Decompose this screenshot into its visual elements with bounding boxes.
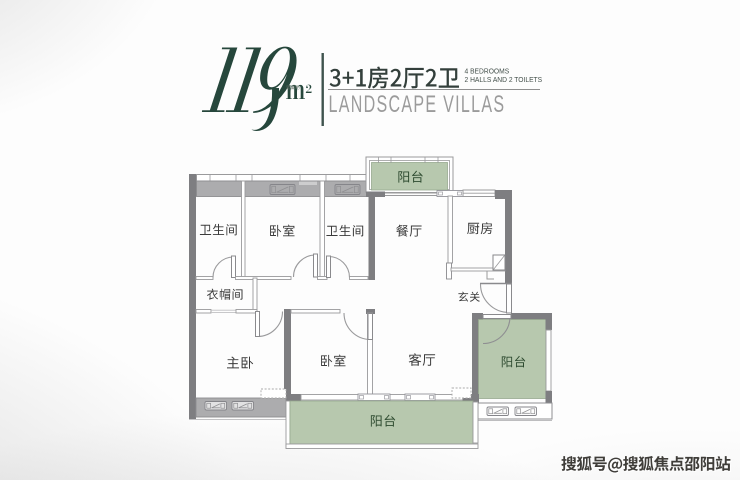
svg-text:4 BEDROOMS: 4 BEDROOMS (465, 68, 510, 75)
svg-text:2 HALLS AND 2 TOILETS: 2 HALLS AND 2 TOILETS (465, 77, 543, 84)
svg-text:LANDSCAPE VILLAS: LANDSCAPE VILLAS (329, 91, 506, 118)
